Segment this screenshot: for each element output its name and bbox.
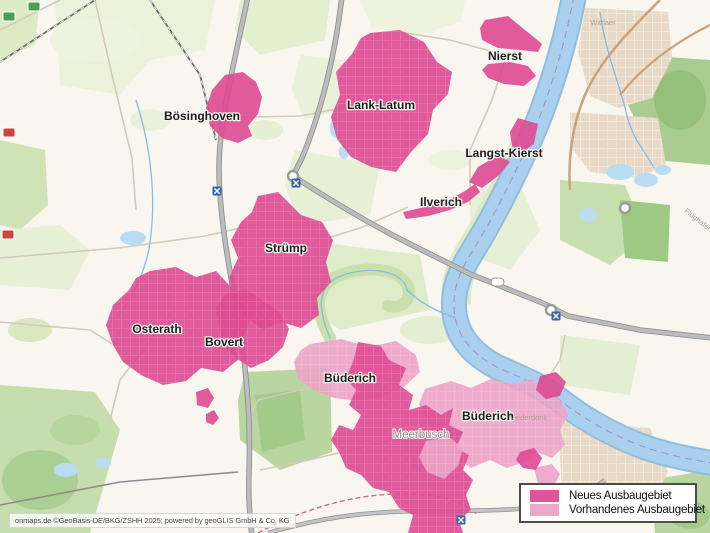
place-label-b-derich: Büderich xyxy=(462,409,514,423)
place-label-osterath: Osterath xyxy=(132,322,181,336)
place-label-nierst: Nierst xyxy=(488,49,522,63)
place-label-b-singhoven: Bösinghoven xyxy=(164,109,240,123)
legend-swatch-neues-ausbaugebiet xyxy=(530,490,559,502)
road-number-badge xyxy=(491,278,504,286)
map-viewport[interactable]: NierstLank-LatumBösinghovenLangst-Kierst… xyxy=(0,0,710,533)
legend-item-vorhandenes: Vorhandenes Ausbaugebiet xyxy=(530,504,691,516)
road-shield-icon xyxy=(28,2,40,11)
place-label-wittlaer: Wittlaer xyxy=(590,18,616,27)
place-label-niederdonk: Niederdonk xyxy=(509,413,548,422)
legend-label-neues-ausbaugebiet: Neues Ausbaugebiet xyxy=(569,490,672,502)
place-label-b-derich: Büderich xyxy=(324,371,376,385)
place-label-lank-latum: Lank-Latum xyxy=(347,98,415,112)
road-shield-icon xyxy=(2,230,14,239)
legend: Neues Ausbaugebiet Vorhandenes Ausbaugeb… xyxy=(519,483,697,523)
legend-item-neues: Neues Ausbaugebiet xyxy=(530,490,691,502)
legend-label-vorhandenes-ausbaugebiet: Vorhandenes Ausbaugebiet xyxy=(569,504,705,516)
map-canvas: NierstLank-LatumBösinghovenLangst-Kierst… xyxy=(0,0,710,533)
legend-swatch-vorhandenes-ausbaugebiet xyxy=(530,504,559,516)
place-label-bovert: Bovert xyxy=(205,335,243,349)
road-shield-icon xyxy=(3,12,15,21)
place-label-langst-kierst: Langst-Kierst xyxy=(465,146,542,160)
road-shield-icon xyxy=(3,128,15,137)
place-label-ilverich: Ilverich xyxy=(420,195,462,209)
roundabout-icon xyxy=(620,203,630,213)
map-attribution: onmaps.de ©GeoBasis-DE/BKG/ZSHH 2025; po… xyxy=(9,513,296,528)
place-label-meerbusch: Meerbusch xyxy=(393,429,450,441)
place-label-str-mp: Strümp xyxy=(265,241,307,255)
